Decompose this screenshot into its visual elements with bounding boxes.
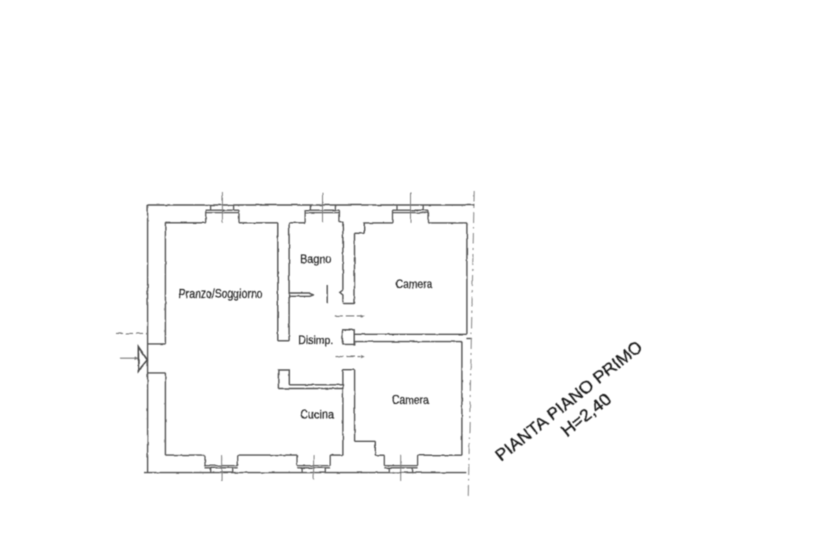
svg-text:Disimp.: Disimp. <box>298 333 333 347</box>
svg-text:Cucina: Cucina <box>300 408 334 422</box>
svg-text:PIANTA PIANO PRIMO: PIANTA PIANO PRIMO <box>492 337 646 465</box>
svg-text:Pranzo/Soggiorno: Pranzo/Soggiorno <box>179 286 263 301</box>
svg-text:Bagno: Bagno <box>300 252 332 266</box>
svg-text:Camera: Camera <box>396 277 433 291</box>
svg-text:Camera: Camera <box>392 393 429 407</box>
